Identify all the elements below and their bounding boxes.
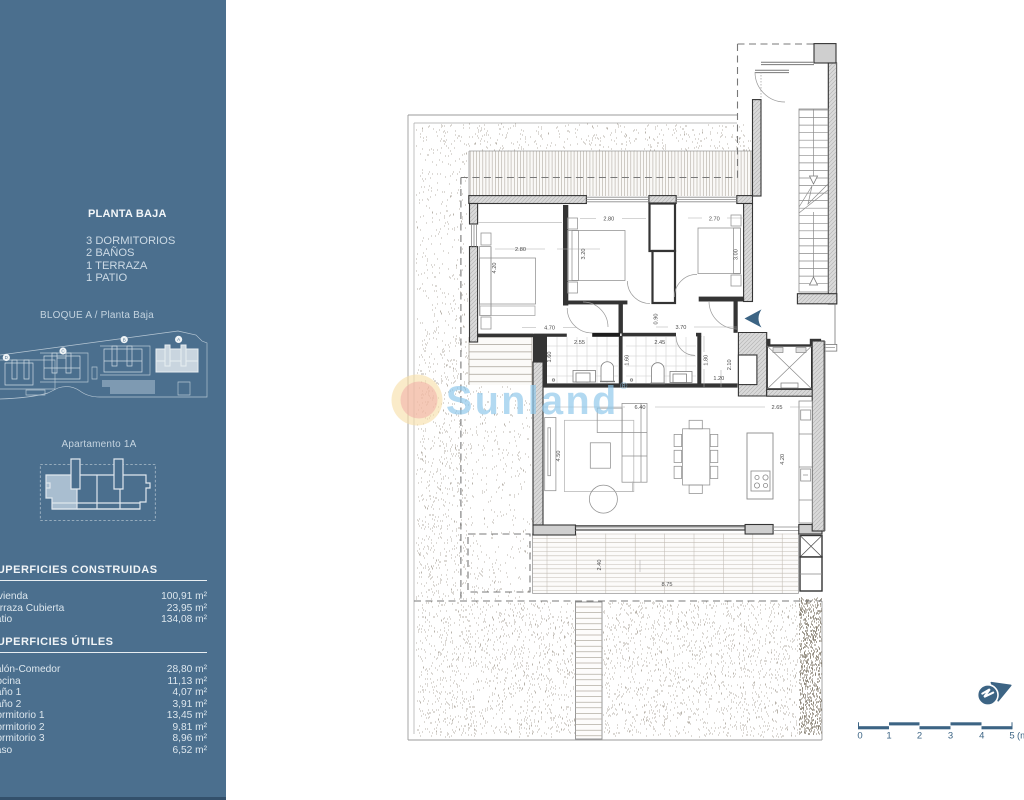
svg-text:4.20: 4.20 — [780, 454, 786, 465]
svg-text:1.80: 1.80 — [704, 355, 710, 366]
svg-text:6.40: 6.40 — [635, 405, 646, 411]
svg-text:2.80: 2.80 — [515, 247, 526, 253]
svg-text:3.20: 3.20 — [581, 249, 587, 260]
svg-text:4.70: 4.70 — [544, 326, 555, 332]
svg-text:2.55: 2.55 — [574, 340, 585, 346]
svg-text:0: 0 — [857, 731, 862, 742]
svg-text:3.70: 3.70 — [675, 325, 686, 331]
svg-text:1.20: 1.20 — [713, 376, 724, 382]
svg-text:1.60: 1.60 — [547, 352, 553, 363]
svg-text:2.65: 2.65 — [772, 405, 783, 411]
svg-text:(m): (m) — [1017, 731, 1024, 742]
svg-text:2.80: 2.80 — [603, 217, 614, 223]
svg-text:1: 1 — [886, 731, 891, 742]
svg-text:2: 2 — [917, 731, 922, 742]
svg-text:0.90: 0.90 — [654, 314, 660, 325]
svg-text:4.20: 4.20 — [492, 263, 498, 274]
svg-text:3.00: 3.00 — [734, 249, 740, 260]
svg-text:®: ® — [620, 381, 628, 392]
svg-text:5: 5 — [1009, 731, 1014, 742]
svg-text:3: 3 — [948, 731, 953, 742]
svg-text:8.75: 8.75 — [662, 582, 673, 588]
svg-text:Sunland: Sunland — [446, 379, 619, 423]
svg-text:4: 4 — [979, 731, 984, 742]
svg-text:2.40: 2.40 — [597, 560, 603, 571]
svg-text:2.10: 2.10 — [727, 359, 733, 370]
svg-text:1.60: 1.60 — [625, 355, 631, 366]
svg-text:2.45: 2.45 — [654, 340, 665, 346]
svg-text:4.50: 4.50 — [556, 451, 562, 462]
svg-text:2.70: 2.70 — [709, 216, 720, 222]
